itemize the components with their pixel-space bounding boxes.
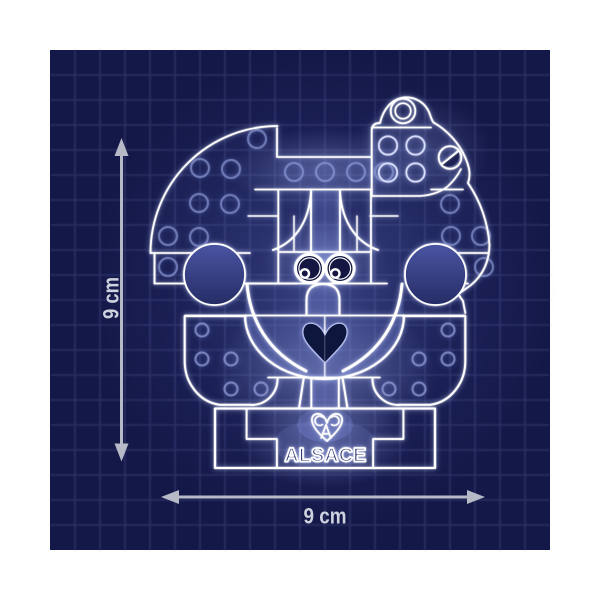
svg-text:9 cm: 9 cm xyxy=(99,277,124,319)
svg-text:ALSACE: ALSACE xyxy=(285,445,367,467)
svg-text:9 cm: 9 cm xyxy=(304,504,347,529)
